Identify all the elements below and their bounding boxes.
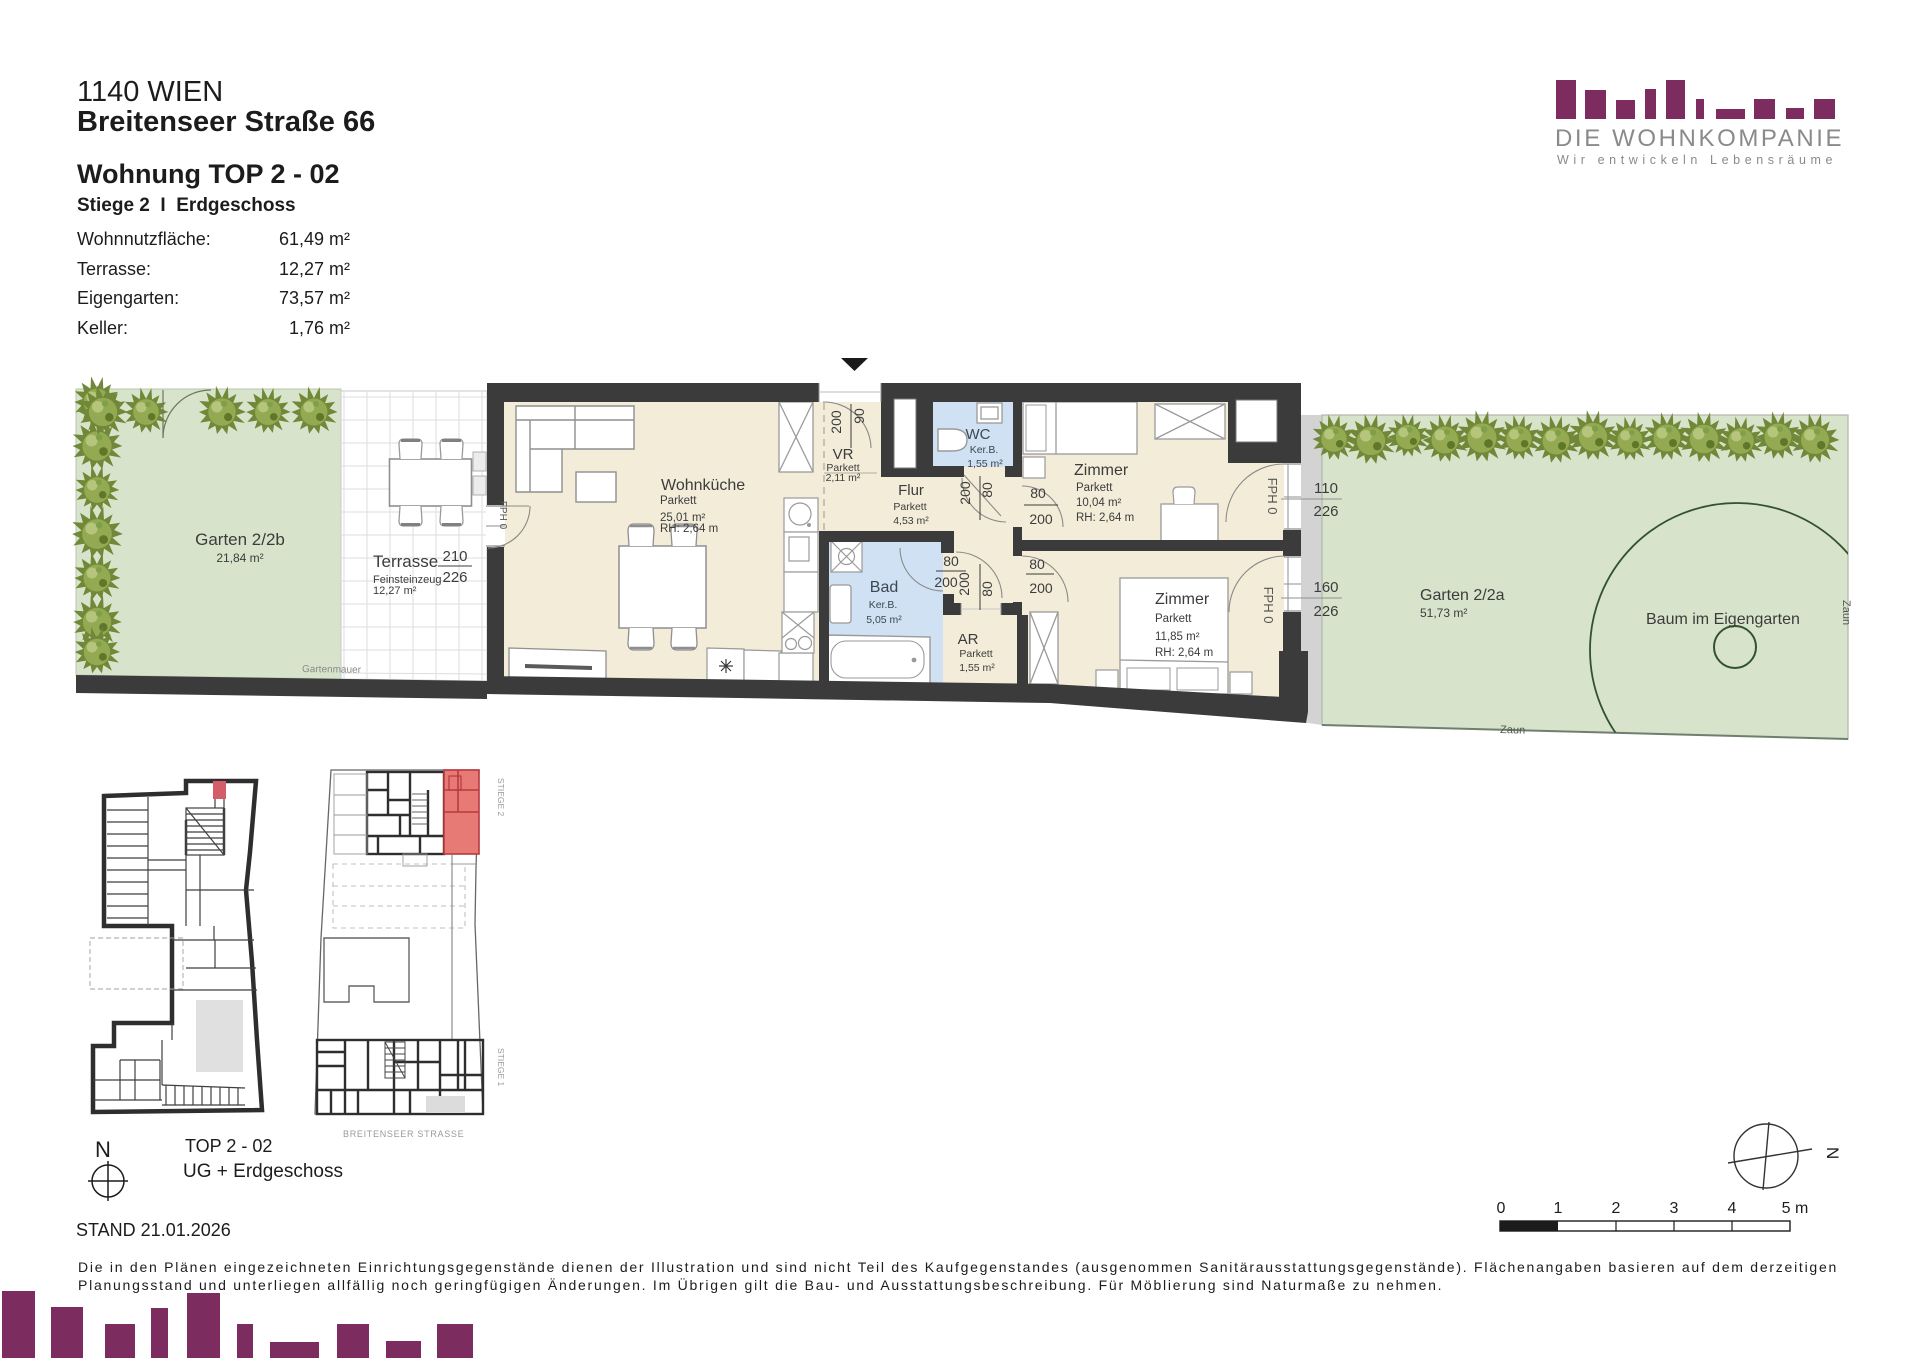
svg-text:Baum im Eigengarten: Baum im Eigengarten xyxy=(1646,611,1800,628)
svg-text:STAND 21.01.2026: STAND 21.01.2026 xyxy=(76,1220,231,1240)
svg-text:Flur: Flur xyxy=(898,482,924,499)
svg-text:Keller:: Keller: xyxy=(77,318,128,338)
svg-text:200: 200 xyxy=(934,574,958,590)
svg-text:5 m: 5 m xyxy=(1782,1200,1809,1217)
svg-text:226: 226 xyxy=(1313,603,1338,620)
svg-text:Parkett: Parkett xyxy=(660,495,697,507)
svg-text:226: 226 xyxy=(1313,503,1338,520)
svg-text:VR: VR xyxy=(833,446,854,463)
svg-text:200: 200 xyxy=(828,410,844,434)
svg-text:N: N xyxy=(1823,1147,1842,1159)
svg-text:2: 2 xyxy=(1612,1200,1621,1217)
svg-text:Zimmer: Zimmer xyxy=(1074,462,1129,479)
svg-text:Ker.B.: Ker.B. xyxy=(970,444,999,456)
svg-text:RH: 2,64 m: RH: 2,64 m xyxy=(1076,512,1134,524)
svg-text:RH: 2,64 m: RH: 2,64 m xyxy=(1155,647,1213,659)
svg-text:200: 200 xyxy=(1029,511,1053,527)
svg-text:N: N xyxy=(95,1137,111,1162)
svg-text:80: 80 xyxy=(979,482,995,498)
svg-text:Wohnküche: Wohnküche xyxy=(661,477,745,494)
svg-text:Bad: Bad xyxy=(870,579,898,596)
svg-text:61,49 m²: 61,49 m² xyxy=(279,229,350,249)
svg-text:Wohnung TOP 2 - 02: Wohnung TOP 2 - 02 xyxy=(77,159,340,189)
svg-text:Zaun: Zaun xyxy=(1840,600,1852,625)
svg-text:Breitenseer Straße 66: Breitenseer Straße 66 xyxy=(77,106,375,138)
svg-text:TOP 2 - 02: TOP 2 - 02 xyxy=(185,1136,272,1156)
svg-text:Planungsstand und unterliegen: Planungsstand und unterliegen allfällig … xyxy=(78,1276,1443,1293)
svg-text:Parkett: Parkett xyxy=(893,501,926,513)
svg-text:5,05 m²: 5,05 m² xyxy=(866,614,902,626)
svg-text:Die in den Plänen eingezeichne: Die in den Plänen eingezeichneten Einric… xyxy=(78,1259,1838,1275)
svg-text:Gartenmauer: Gartenmauer xyxy=(302,664,362,676)
svg-text:110: 110 xyxy=(1314,480,1338,497)
svg-text:3: 3 xyxy=(1670,1200,1679,1217)
svg-text:Ker.B.: Ker.B. xyxy=(869,599,898,611)
svg-text:STIEGE 2: STIEGE 2 xyxy=(496,778,506,817)
svg-text:1,55 m²: 1,55 m² xyxy=(967,458,1003,470)
svg-text:90: 90 xyxy=(851,408,867,424)
svg-text:21,84 m²: 21,84 m² xyxy=(216,551,263,565)
svg-text:Wohnnutzfläche:: Wohnnutzfläche: xyxy=(77,229,211,249)
svg-text:1,55 m²: 1,55 m² xyxy=(959,662,995,674)
svg-text:UG + Erdgeschoss: UG + Erdgeschoss xyxy=(183,1161,343,1182)
svg-text:FPH 0: FPH 0 xyxy=(1261,587,1276,624)
svg-text:73,57 m²: 73,57 m² xyxy=(279,288,350,308)
svg-text:80: 80 xyxy=(943,553,959,569)
svg-text:Garten 2/2b: Garten 2/2b xyxy=(195,530,285,549)
svg-text:200: 200 xyxy=(957,481,973,505)
svg-text:WC: WC xyxy=(966,426,991,443)
svg-text:1140 WIEN: 1140 WIEN xyxy=(77,76,223,108)
svg-text:4: 4 xyxy=(1728,1200,1737,1217)
svg-text:51,73 m²: 51,73 m² xyxy=(1420,606,1467,620)
svg-text:FPH 0: FPH 0 xyxy=(497,501,508,530)
svg-text:Parkett: Parkett xyxy=(1155,613,1192,625)
svg-text:Wir entwickeln Lebensräume: Wir entwickeln Lebensräume xyxy=(1557,153,1837,167)
svg-text:BREITENSEER STRASSE: BREITENSEER STRASSE xyxy=(343,1129,464,1139)
svg-text:FPH 0: FPH 0 xyxy=(1265,478,1280,515)
svg-text:80: 80 xyxy=(1029,556,1045,572)
svg-text:AR: AR xyxy=(958,631,979,648)
svg-text:RH: 2,64 m: RH: 2,64 m xyxy=(660,523,718,535)
svg-text:1: 1 xyxy=(1554,1200,1563,1217)
svg-text:Stiege 2 I Erdgeschoss: Stiege 2 I Erdgeschoss xyxy=(77,195,296,216)
svg-text:0: 0 xyxy=(1497,1200,1506,1217)
svg-text:210: 210 xyxy=(442,548,467,565)
svg-text:Parkett: Parkett xyxy=(1076,482,1113,494)
svg-text:226: 226 xyxy=(442,569,467,586)
svg-text:2,11 m²: 2,11 m² xyxy=(826,472,861,484)
svg-text:80: 80 xyxy=(1030,485,1046,501)
svg-text:80: 80 xyxy=(979,581,995,597)
svg-text:Terrasse: Terrasse xyxy=(373,552,438,571)
svg-text:Garten 2/2a: Garten 2/2a xyxy=(1420,587,1505,604)
svg-text:Parkett: Parkett xyxy=(959,648,992,660)
svg-text:160: 160 xyxy=(1313,579,1338,596)
svg-text:200: 200 xyxy=(956,572,972,596)
svg-text:10,04 m²: 10,04 m² xyxy=(1076,497,1122,509)
svg-text:STIEGE 1: STIEGE 1 xyxy=(496,1048,506,1087)
svg-text:12,27 m²: 12,27 m² xyxy=(279,259,350,279)
svg-text:1,76 m²: 1,76 m² xyxy=(289,318,350,338)
svg-text:Zimmer: Zimmer xyxy=(1155,591,1210,608)
svg-text:Terrasse:: Terrasse: xyxy=(77,259,151,279)
svg-text:200: 200 xyxy=(1029,580,1053,596)
svg-text:DIE WOHNKOMPANIE: DIE WOHNKOMPANIE xyxy=(1555,125,1844,152)
svg-text:4,53 m²: 4,53 m² xyxy=(893,515,929,527)
svg-text:11,85 m²: 11,85 m² xyxy=(1155,631,1200,643)
svg-text:Eigengarten:: Eigengarten: xyxy=(77,288,179,308)
svg-text:12,27 m²: 12,27 m² xyxy=(373,585,417,597)
svg-text:Zaun: Zaun xyxy=(1500,724,1525,737)
